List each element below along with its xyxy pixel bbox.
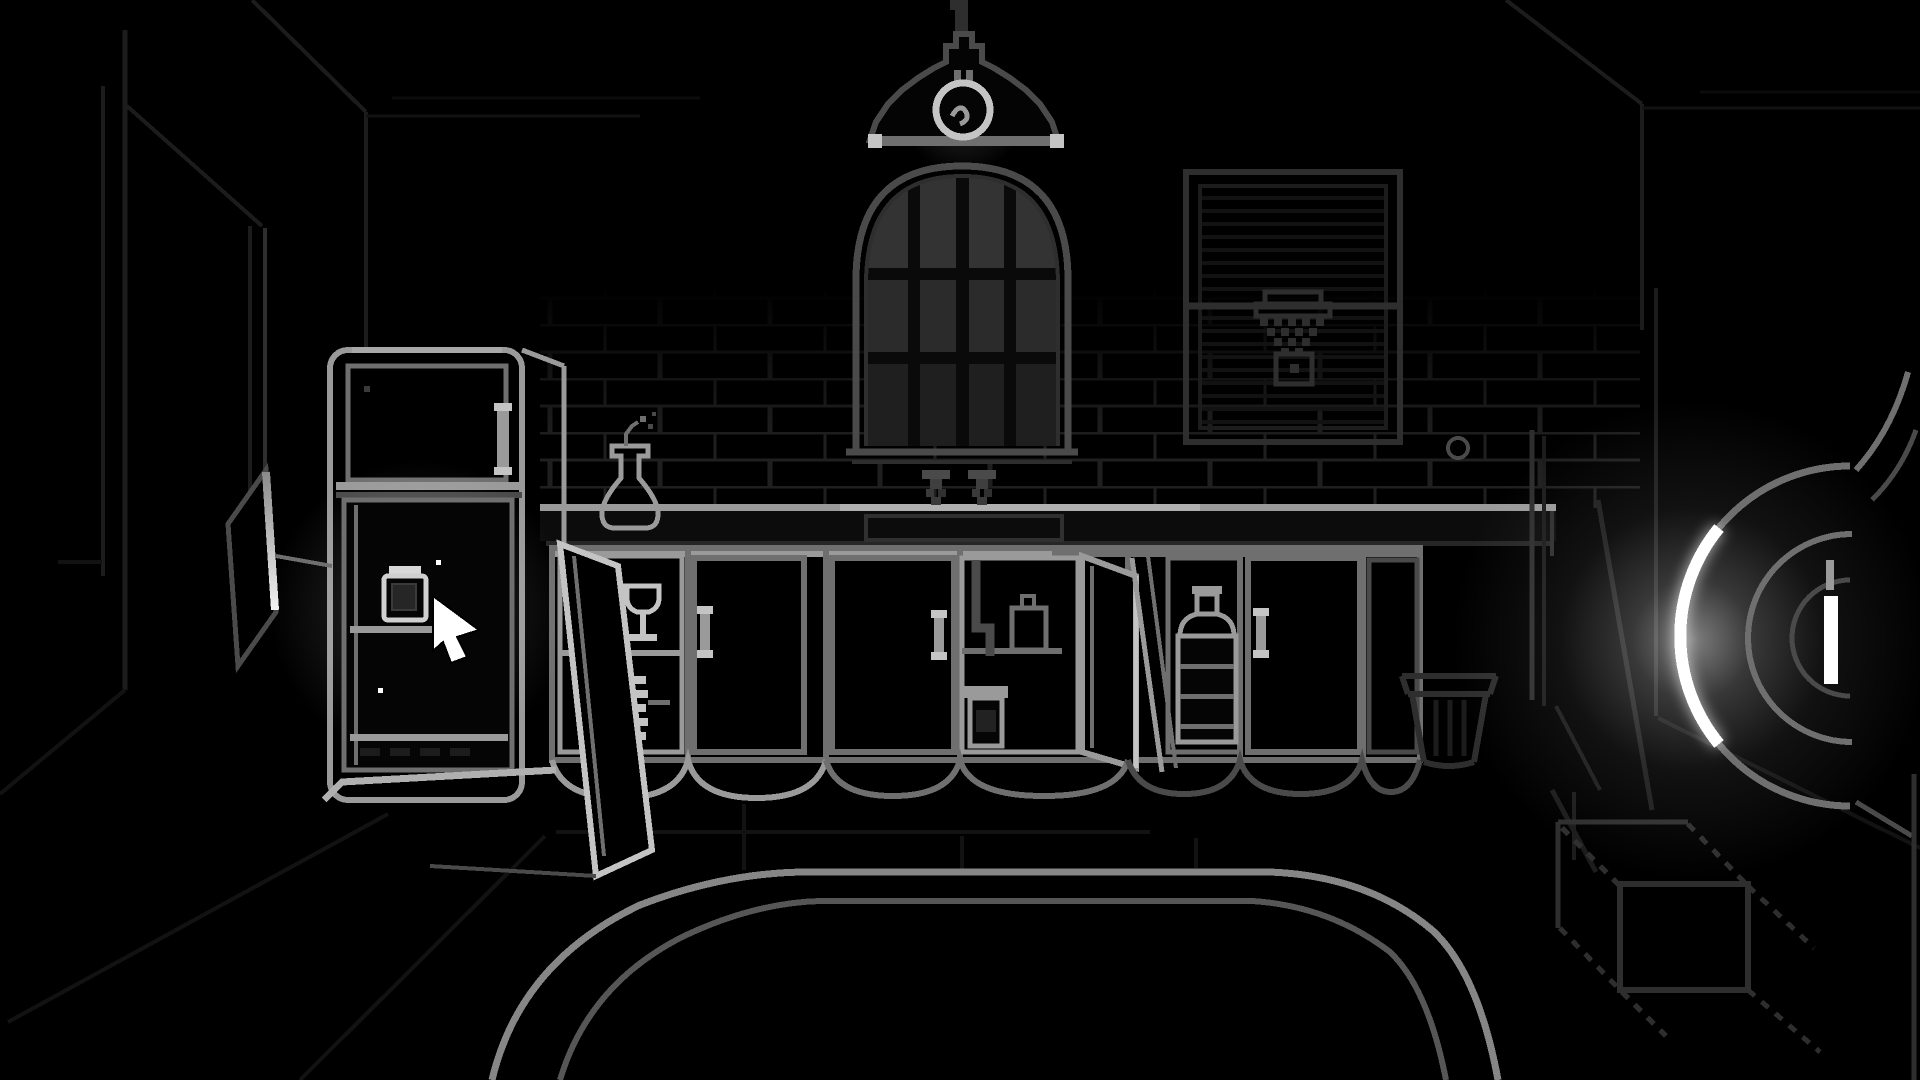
door-handle <box>700 610 710 654</box>
freezer-handle <box>497 407 509 467</box>
game-viewport <box>0 0 1920 1080</box>
door-handle <box>1256 612 1266 654</box>
lamp-cord <box>950 0 968 10</box>
spotlight-highlight <box>1824 596 1838 684</box>
fridge-shelf <box>350 626 434 633</box>
crock[interactable] <box>964 686 1008 746</box>
open-cabinet-door[interactable] <box>1082 556 1136 768</box>
brick-backsplash <box>540 290 1640 508</box>
fridge-opening <box>344 500 512 770</box>
kitchen-scene <box>0 0 1920 1080</box>
jar[interactable] <box>384 566 426 620</box>
sparkle <box>378 688 383 693</box>
sparkle <box>436 560 441 565</box>
fridge-shelf <box>350 734 508 741</box>
door-handle <box>934 614 944 656</box>
